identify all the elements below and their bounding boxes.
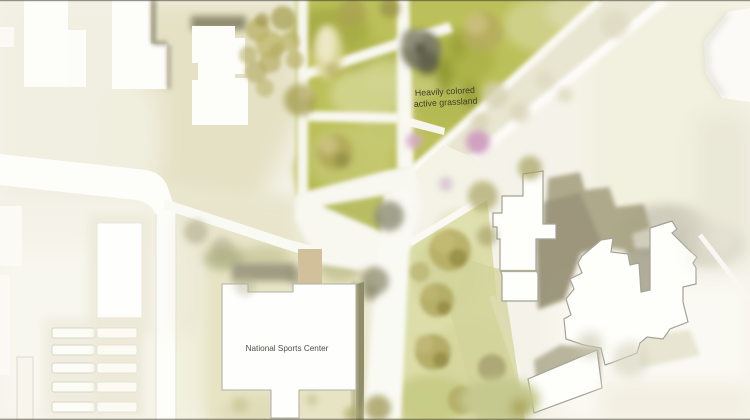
svg-text:National Sports Center: National Sports Center	[246, 344, 329, 353]
